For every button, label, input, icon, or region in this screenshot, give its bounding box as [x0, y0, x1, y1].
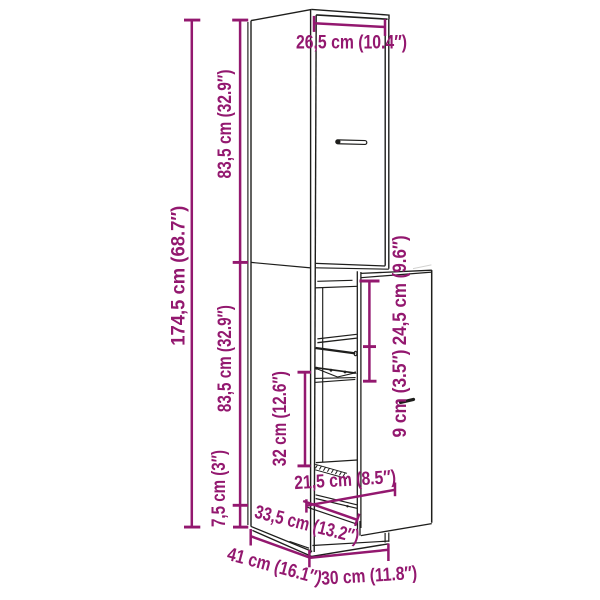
svg-text:174,5 cm (68.7″): 174,5 cm (68.7″) [169, 206, 190, 346]
svg-text:7,5 cm (3″): 7,5 cm (3″) [209, 450, 230, 527]
svg-text:32 cm (12.6″): 32 cm (12.6″) [270, 371, 291, 466]
svg-text:24,5 cm (9.6″): 24,5 cm (9.6″) [390, 235, 411, 345]
svg-text:83,5 cm (32.9″): 83,5 cm (32.9″) [215, 70, 236, 179]
svg-text:9 cm (3.5″): 9 cm (3.5″) [390, 350, 411, 438]
svg-text:83,5 cm (32.9″): 83,5 cm (32.9″) [215, 305, 236, 412]
svg-text:26,5 cm (10.4″): 26,5 cm (10.4″) [296, 33, 407, 54]
